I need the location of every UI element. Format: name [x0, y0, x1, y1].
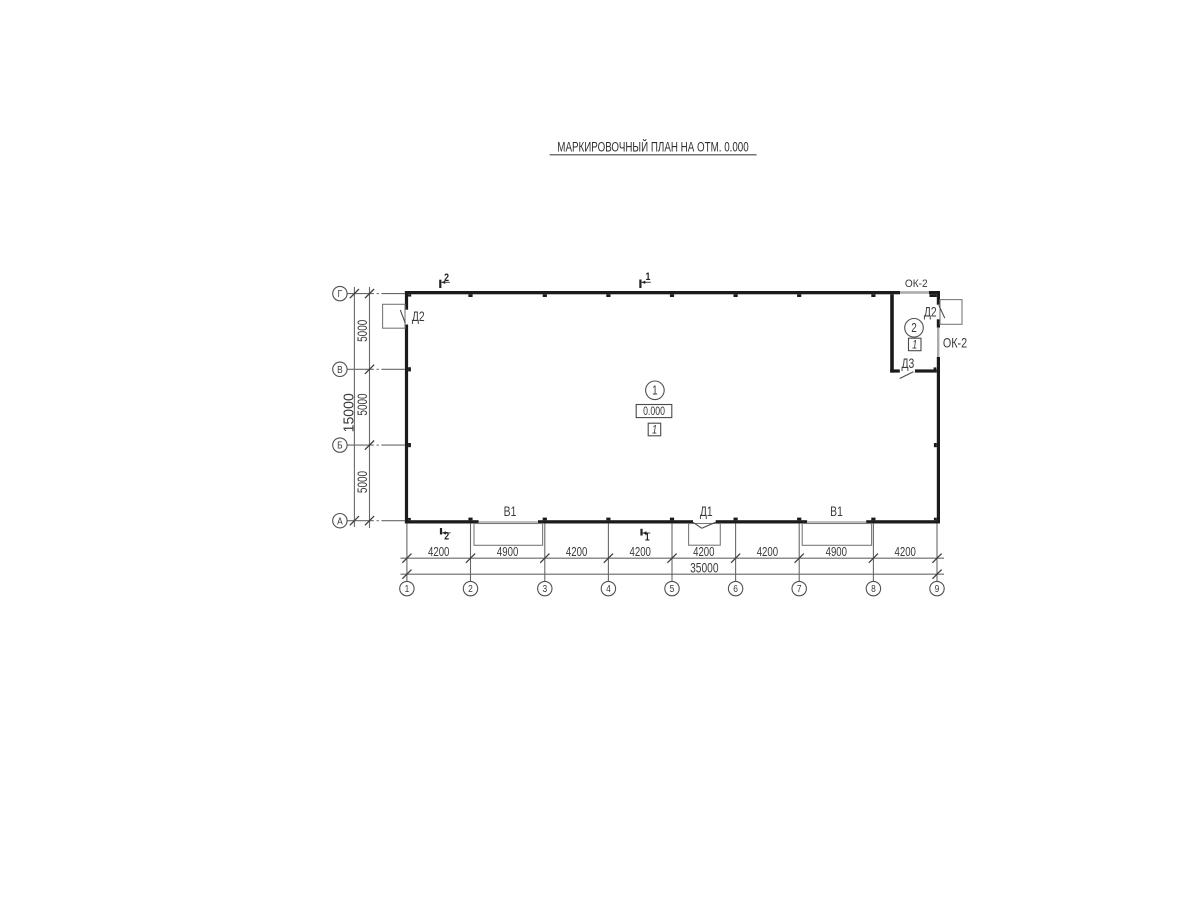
svg-text:1: 1	[646, 271, 651, 283]
svg-text:4200: 4200	[566, 546, 587, 560]
svg-text:4900: 4900	[826, 546, 847, 560]
svg-text:1: 1	[405, 583, 410, 595]
svg-text:МАРКИРОВОЧНЫЙ ПЛАН НА ОТМ. 0.0: МАРКИРОВОЧНЫЙ ПЛАН НА ОТМ. 0.000	[557, 137, 749, 154]
svg-text:5: 5	[670, 583, 675, 595]
svg-text:4200: 4200	[895, 546, 916, 560]
svg-text:9: 9	[935, 583, 940, 595]
svg-text:0.000: 0.000	[643, 406, 665, 418]
svg-text:ОК-2: ОК-2	[943, 335, 967, 350]
svg-text:1: 1	[652, 425, 657, 437]
svg-text:4200: 4200	[757, 546, 778, 560]
svg-text:А: А	[337, 515, 343, 527]
svg-text:1: 1	[645, 531, 650, 543]
svg-text:35000: 35000	[690, 560, 719, 576]
svg-text:В: В	[337, 364, 343, 376]
svg-text:1: 1	[912, 340, 917, 352]
svg-text:5000: 5000	[355, 471, 371, 494]
svg-text:Г: Г	[338, 288, 343, 300]
svg-text:5000: 5000	[355, 319, 371, 342]
svg-text:2: 2	[444, 272, 449, 284]
svg-text:1: 1	[652, 385, 658, 398]
svg-text:6: 6	[733, 583, 738, 595]
svg-text:В1: В1	[830, 503, 843, 519]
svg-text:Д1: Д1	[700, 503, 713, 519]
svg-text:15000: 15000	[341, 393, 357, 432]
svg-text:3: 3	[542, 583, 547, 595]
svg-text:2: 2	[468, 583, 473, 595]
svg-text:4200: 4200	[630, 546, 651, 560]
svg-text:4900: 4900	[497, 546, 518, 560]
svg-text:Д2: Д2	[924, 304, 937, 320]
svg-text:2: 2	[911, 322, 917, 335]
svg-text:8: 8	[871, 583, 876, 595]
svg-text:Б: Б	[337, 440, 343, 452]
svg-text:ОК-2: ОК-2	[905, 278, 928, 290]
svg-text:Д2: Д2	[412, 308, 425, 324]
svg-text:4200: 4200	[693, 546, 714, 560]
svg-text:4200: 4200	[428, 546, 449, 560]
svg-text:2: 2	[444, 530, 449, 542]
svg-text:7: 7	[797, 583, 802, 595]
svg-text:В1: В1	[504, 503, 517, 519]
svg-text:Д3: Д3	[902, 355, 915, 371]
svg-text:4: 4	[606, 583, 611, 595]
